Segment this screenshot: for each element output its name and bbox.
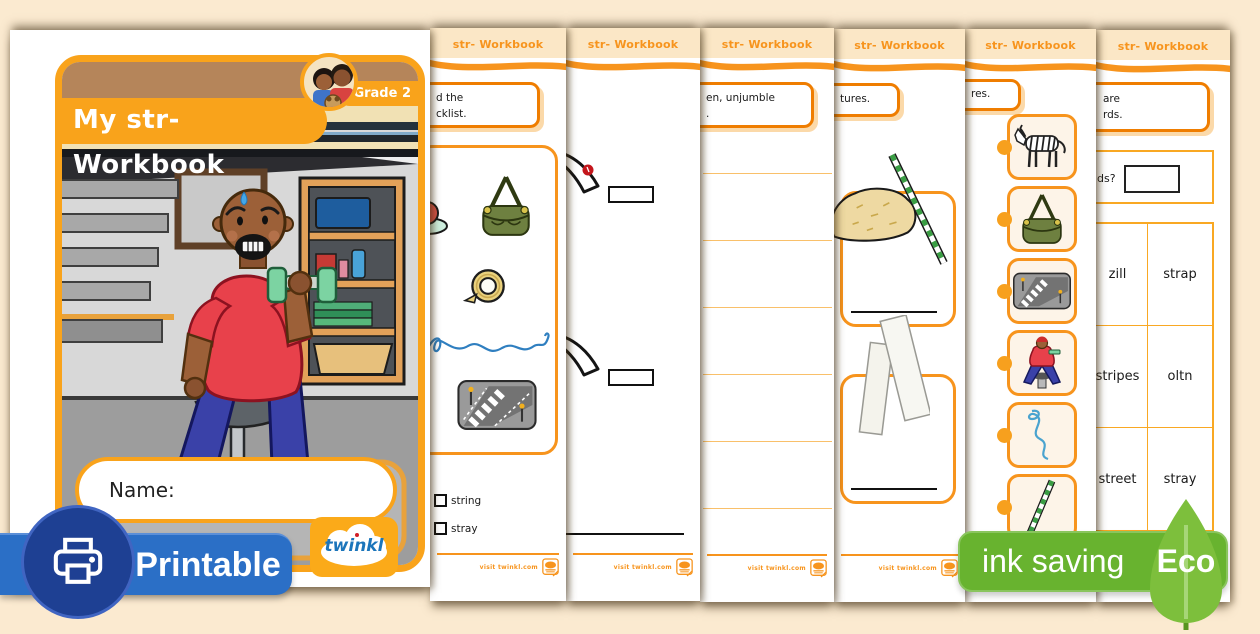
visit-text: visit twinkl.com: [614, 564, 672, 571]
worksheet-cards-page: str- Workbook res.: [965, 29, 1096, 602]
writing-line: [703, 441, 832, 442]
twinkl-stamp-icon: [941, 559, 958, 578]
twinkl-logo-dot: [355, 533, 359, 537]
sheet-footer: visit twinkl.com: [707, 554, 827, 578]
sheet-header: str- Workbook: [430, 28, 566, 58]
header-swoosh: [700, 58, 834, 71]
twinkl-stamp-icon: [676, 558, 693, 577]
sheet-footer: visit twinkl.com: [841, 554, 958, 578]
paper-strips-icon: [858, 315, 930, 443]
word-table: zill strap stripes oltn street stray: [1096, 222, 1214, 532]
writing-line: [703, 240, 832, 241]
twinkl-logo: twinkl: [310, 517, 398, 577]
sheet-header: str- Workbook: [700, 28, 834, 58]
picture-card: [1007, 114, 1077, 180]
sheet-header: str- Workbook: [1096, 30, 1230, 60]
eco-label: Eco: [1136, 543, 1236, 580]
kids-avatar: [300, 53, 358, 111]
sheet-header: str- Workbook: [566, 28, 700, 58]
instruction-box: are rds.: [1096, 82, 1210, 132]
footer-line: [841, 554, 958, 556]
writing-line: [703, 374, 832, 375]
cover-title: My str- Workbook: [55, 98, 327, 144]
sheet-footer: visit twinkl.com: [437, 553, 559, 577]
string-icon: [430, 328, 555, 364]
answer-rect: [608, 186, 654, 203]
answer-line: [566, 533, 684, 535]
workbook-cover-page: My str- Workbook Grade 2 Name:: [10, 30, 430, 587]
answer-rect: [608, 369, 654, 386]
answer-box: [1124, 165, 1180, 193]
strap-bag-icon: [477, 174, 535, 238]
instruction-box: en, unjumble .: [700, 82, 814, 128]
question-fragment: ds?: [1097, 172, 1116, 185]
twinkl-stamp-icon: [810, 559, 827, 578]
checklist-item: string: [434, 494, 481, 507]
visit-text: visit twinkl.com: [480, 564, 538, 571]
question-strip: ds?: [1096, 150, 1214, 204]
sheet-header: str- Workbook: [965, 29, 1096, 59]
drinking-straw-icon: [1016, 479, 1068, 535]
drinking-straw-icon: [880, 149, 952, 269]
eco-leaf: Eco: [1136, 497, 1236, 630]
pictures-box: [430, 145, 558, 455]
ink-saving-label: ink saving: [982, 533, 1124, 590]
writing-line: [703, 508, 832, 509]
word-cell: strap: [1148, 224, 1212, 326]
word-cell: zill: [1096, 224, 1148, 326]
man-lifting-weights-icon: [1019, 336, 1065, 390]
checkbox-label: string: [451, 495, 481, 507]
checkbox-label: stray: [451, 523, 478, 535]
worksheet-pictures-page: str- Workbook tures. visit twinkl.com: [834, 29, 965, 602]
writing-line: [703, 173, 832, 174]
instruction-box: tures.: [834, 83, 900, 117]
curved-arrow-icon: [566, 148, 610, 194]
answer-line: [851, 311, 937, 313]
checkbox: [434, 494, 447, 507]
name-label: Name:: [109, 478, 175, 502]
curved-arrow-icon: [566, 331, 610, 377]
sheet-footer: visit twinkl.com: [573, 553, 693, 577]
word-cell: stripes: [1096, 326, 1148, 428]
cover-card: My str- Workbook Grade 2 Name:: [55, 55, 425, 572]
answer-line: [851, 488, 937, 490]
hat-icon: [430, 196, 451, 236]
instruction-box: res.: [965, 79, 1021, 111]
header-swoosh: [566, 58, 700, 71]
string-icon: [1014, 407, 1070, 463]
twinkl-logo-text: twinkl: [310, 536, 398, 556]
street-crossing-icon: [1013, 272, 1071, 310]
picture-card: [1007, 186, 1077, 252]
worksheet-unjumble-page: str- Workbook en, unjumble . visit twink…: [700, 28, 834, 602]
street-crossing-icon: [457, 380, 537, 430]
worksheet-checklist-page: str- Workbook d the cklist.: [430, 28, 566, 601]
checkbox: [434, 522, 447, 535]
footer-line: [437, 553, 559, 555]
picture-card: [1007, 258, 1077, 324]
twinkl-stamp-icon: [542, 558, 559, 577]
visit-text: visit twinkl.com: [879, 565, 937, 572]
strap-bag-icon: [1018, 191, 1066, 247]
printable-icon-circle: [21, 505, 135, 619]
name-field: Name:: [75, 457, 397, 523]
header-swoosh: [430, 58, 566, 71]
picture-card: [1007, 330, 1077, 396]
footer-line: [573, 553, 693, 555]
header-swoosh: [965, 59, 1096, 72]
picture-card: [1007, 402, 1077, 468]
printer-icon: [50, 534, 106, 590]
header-swoosh: [834, 59, 965, 72]
sticky-tape-icon: [463, 266, 511, 308]
header-swoosh: [1096, 60, 1230, 73]
word-cell: oltn: [1148, 326, 1212, 428]
checklist-item: stray: [434, 522, 478, 535]
zebra-icon: [1014, 123, 1070, 171]
worksheet-match-page: str- Workbook visit twinkl.com: [566, 28, 700, 601]
printable-label: Printable: [132, 535, 284, 595]
instruction-box: d the cklist.: [430, 82, 540, 128]
visit-text: visit twinkl.com: [748, 565, 806, 572]
resource-preview: { "cover": { "title": "My str- Workbook"…: [0, 0, 1260, 630]
sheet-header: str- Workbook: [834, 29, 965, 59]
writing-line: [703, 307, 832, 308]
footer-line: [707, 554, 827, 556]
